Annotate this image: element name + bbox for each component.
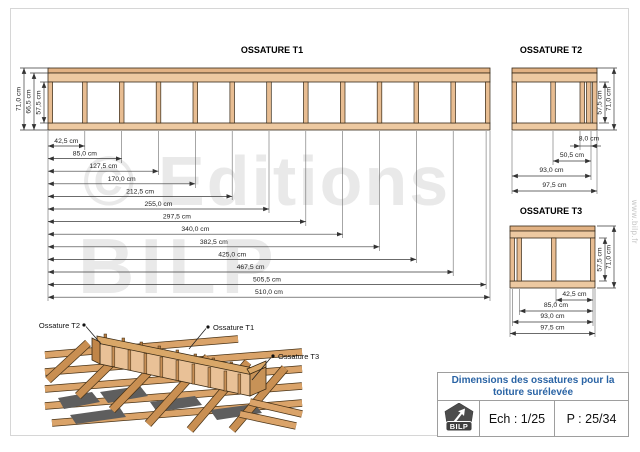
t1-height-dim-665: 66,5 cm	[26, 89, 33, 114]
logo-cell: BILP	[438, 401, 480, 436]
iso-view: Ossature T2 Ossature T1 Ossature T3	[39, 321, 319, 430]
t1-dim-2975: 297,5 cm	[163, 214, 191, 221]
bilp-logo-text: BILP	[449, 422, 467, 431]
title-block-title: Dimensions des ossatures pour la toiture…	[438, 373, 628, 401]
t1-dim-510: 510,0 cm	[255, 289, 283, 296]
page-number-cell: P : 25/34	[555, 401, 628, 436]
iso-label-t2: Ossature T2	[39, 321, 80, 330]
t2-height-dims: 57,5 cm 71,0 cm	[596, 68, 617, 130]
t1-dim-5055: 505,5 cm	[253, 277, 281, 284]
t3-height-dims: 57,5 cm 71,0 cm	[597, 226, 617, 288]
iso-label-t1: Ossature T1	[213, 323, 254, 332]
t1-dim-340: 340,0 cm	[181, 226, 209, 233]
t1-dim-4675: 467,5 cm	[237, 264, 265, 271]
t2-dim-8: 8,0 cm	[579, 136, 600, 143]
ossature-t3-title: OSSATURE T3	[520, 206, 582, 216]
bilp-logo-icon: BILP	[444, 403, 474, 434]
watermark-line1: © Editions	[83, 142, 450, 220]
t2-height-dim-575: 57,5 cm	[597, 90, 604, 115]
title-line2: toiture surélevée	[493, 387, 573, 399]
t1-dim-425cm: 425,0 cm	[218, 251, 246, 258]
t3-dim-975: 97,5 cm	[540, 325, 565, 332]
t1-dim-170: 170,0 cm	[108, 176, 136, 183]
ossature-t1-title: OSSATURE T1	[241, 45, 303, 55]
ossature-t2-drawing: OSSATURE T2 57,5 cm 71,0 cm	[512, 45, 617, 194]
t1-height-dims: 71,0 cm 66,5 cm 57,5 cm	[16, 68, 51, 130]
ossature-t2-title: OSSATURE T2	[520, 45, 582, 55]
t3-dim-85: 85,0 cm	[544, 302, 569, 309]
t3-width-dims: 42,5 cm 85,0 cm 93,0 cm 97,5 cm	[510, 289, 595, 337]
t1-dim-1275: 127,5 cm	[89, 163, 117, 170]
title-block: Dimensions des ossatures pour la toiture…	[437, 372, 629, 437]
side-url-text: www.bilp.fr	[630, 199, 639, 244]
page-number-label: P : 25/34	[567, 412, 617, 426]
t1-dim-425: 42,5 cm	[54, 138, 79, 145]
t2-dim-505: 50,5 cm	[560, 152, 585, 159]
t1-dim-85: 85,0 cm	[73, 151, 98, 158]
t2-dim-93: 93,0 cm	[539, 167, 564, 174]
t2-dim-975: 97,5 cm	[542, 182, 567, 189]
t1-dim-255: 255,0 cm	[145, 201, 173, 208]
t1-height-dim-71: 71,0 cm	[16, 87, 23, 112]
t3-dim-93: 93,0 cm	[540, 313, 565, 320]
title-line1: Dimensions des ossatures pour la	[452, 375, 615, 387]
plan-page: © Editions BILP www.bilp.fr OSSATURE T1	[0, 0, 640, 452]
title-block-row: BILP Ech : 1/25 P : 25/34	[438, 401, 628, 436]
scale-cell: Ech : 1/25	[480, 401, 555, 436]
t2-width-dims: 8,0 cm 50,5 cm 93,0 cm 97,5 cm	[512, 131, 601, 194]
ossature-t3-drawing: OSSATURE T3 57,5 cm 71,0 cm	[510, 206, 616, 337]
t1-dim-2125: 212,5 cm	[126, 188, 154, 195]
t1-height-dim-575: 57,5 cm	[36, 90, 43, 115]
iso-label-t3: Ossature T3	[278, 352, 319, 361]
t3-height-dim-71: 71,0 cm	[606, 245, 613, 270]
t3-dim-425: 42,5 cm	[562, 291, 587, 298]
scale-label: Ech : 1/25	[489, 412, 545, 426]
t1-dim-3825: 382,5 cm	[200, 239, 228, 246]
t3-height-dim-575: 57,5 cm	[597, 247, 604, 272]
t2-height-dim-71: 71,0 cm	[606, 87, 613, 112]
